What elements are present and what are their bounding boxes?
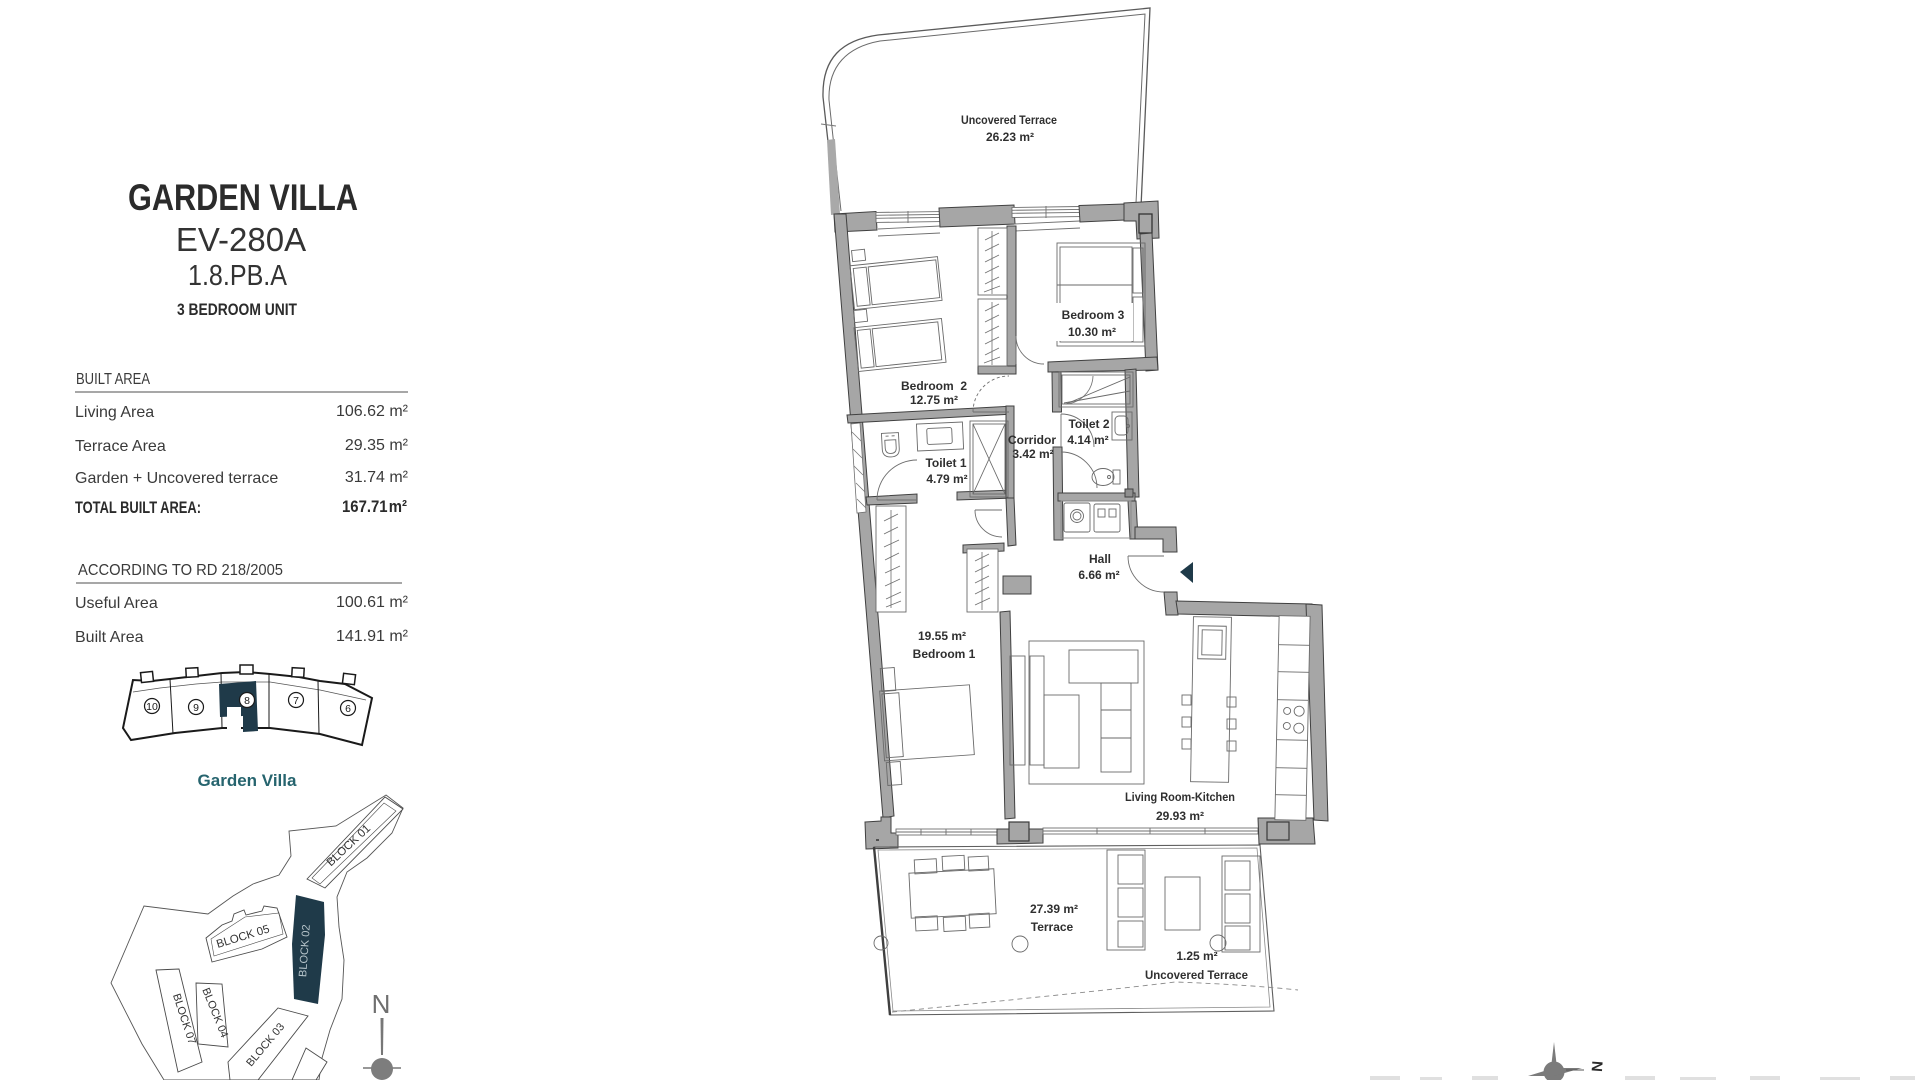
svg-text:4.79 m²: 4.79 m²: [926, 472, 967, 486]
svg-text:Toilet 1: Toilet 1: [925, 456, 966, 470]
svg-text:3.42 m²: 3.42 m²: [1012, 447, 1053, 461]
svg-text:Uncovered Terrace: Uncovered Terrace: [961, 113, 1057, 127]
svg-text:1.8.PB.A: 1.8.PB.A: [188, 260, 288, 292]
svg-text:Living Room-Kitchen: Living Room-Kitchen: [1125, 790, 1235, 804]
svg-text:Garden Villa: Garden Villa: [198, 771, 297, 790]
svg-text:10.30 m²: 10.30 m²: [1068, 325, 1116, 339]
svg-text:Corridor: Corridor: [1008, 433, 1056, 447]
svg-text:26.23 m²: 26.23 m²: [986, 130, 1034, 144]
svg-text:29.93 m²: 29.93 m²: [1156, 809, 1204, 823]
svg-text:12.75 m²: 12.75 m²: [910, 393, 958, 407]
svg-text:N: N: [372, 989, 391, 1019]
svg-text:ACCORDING TO RD 218/2005: ACCORDING TO RD 218/2005: [78, 562, 283, 579]
svg-text:27.39 m²: 27.39 m²: [1030, 902, 1078, 916]
svg-text:10: 10: [146, 701, 158, 713]
svg-text:6: 6: [345, 703, 351, 715]
svg-text:Useful Area: Useful Area: [75, 595, 158, 612]
svg-text:N: N: [1588, 1060, 1606, 1072]
svg-text:1.25 m²: 1.25 m²: [1176, 949, 1217, 963]
svg-text:7: 7: [293, 695, 299, 707]
svg-text:4.14 m²: 4.14 m²: [1067, 433, 1108, 447]
svg-text:Uncovered Terrace: Uncovered Terrace: [1145, 968, 1248, 982]
svg-text:6.66 m²: 6.66 m²: [1078, 568, 1119, 582]
svg-text:Living Area: Living Area: [75, 404, 154, 421]
svg-text:9: 9: [193, 702, 199, 714]
svg-text:Garden + Uncovered terrace: Garden + Uncovered terrace: [75, 470, 278, 487]
svg-text:3 BEDROOM UNIT: 3 BEDROOM UNIT: [177, 301, 297, 319]
svg-text:106.62 m²: 106.62 m²: [336, 403, 409, 420]
svg-text:GARDEN VILLA: GARDEN VILLA: [128, 177, 358, 218]
svg-text:141.91 m²: 141.91 m²: [336, 628, 409, 645]
svg-text:Terrace Area: Terrace Area: [75, 438, 166, 455]
svg-text:EV-280A: EV-280A: [176, 221, 306, 258]
svg-text:Bedroom 1: Bedroom 1: [913, 647, 976, 661]
svg-text:29.35 m²: 29.35 m²: [345, 437, 409, 454]
svg-text:Bedroom 2: Bedroom 2: [901, 379, 967, 393]
svg-text:Built Area: Built Area: [75, 629, 144, 646]
svg-text:TOTAL BUILT AREA:: TOTAL BUILT AREA:: [75, 499, 201, 517]
svg-text:31.74 m²: 31.74 m²: [345, 469, 409, 486]
svg-text:Hall: Hall: [1089, 552, 1111, 566]
svg-text:BUILT AREA: BUILT AREA: [76, 371, 151, 388]
svg-text:Terrace: Terrace: [1031, 920, 1074, 934]
svg-text:100.61 m²: 100.61 m²: [336, 594, 409, 611]
svg-text:8: 8: [244, 695, 250, 707]
svg-text:Bedroom 3: Bedroom 3: [1062, 308, 1125, 322]
svg-text:19.55 m²: 19.55 m²: [918, 629, 966, 643]
svg-text:Toilet 2: Toilet 2: [1068, 417, 1109, 431]
svg-text:167.71 m²: 167.71 m²: [342, 498, 407, 516]
